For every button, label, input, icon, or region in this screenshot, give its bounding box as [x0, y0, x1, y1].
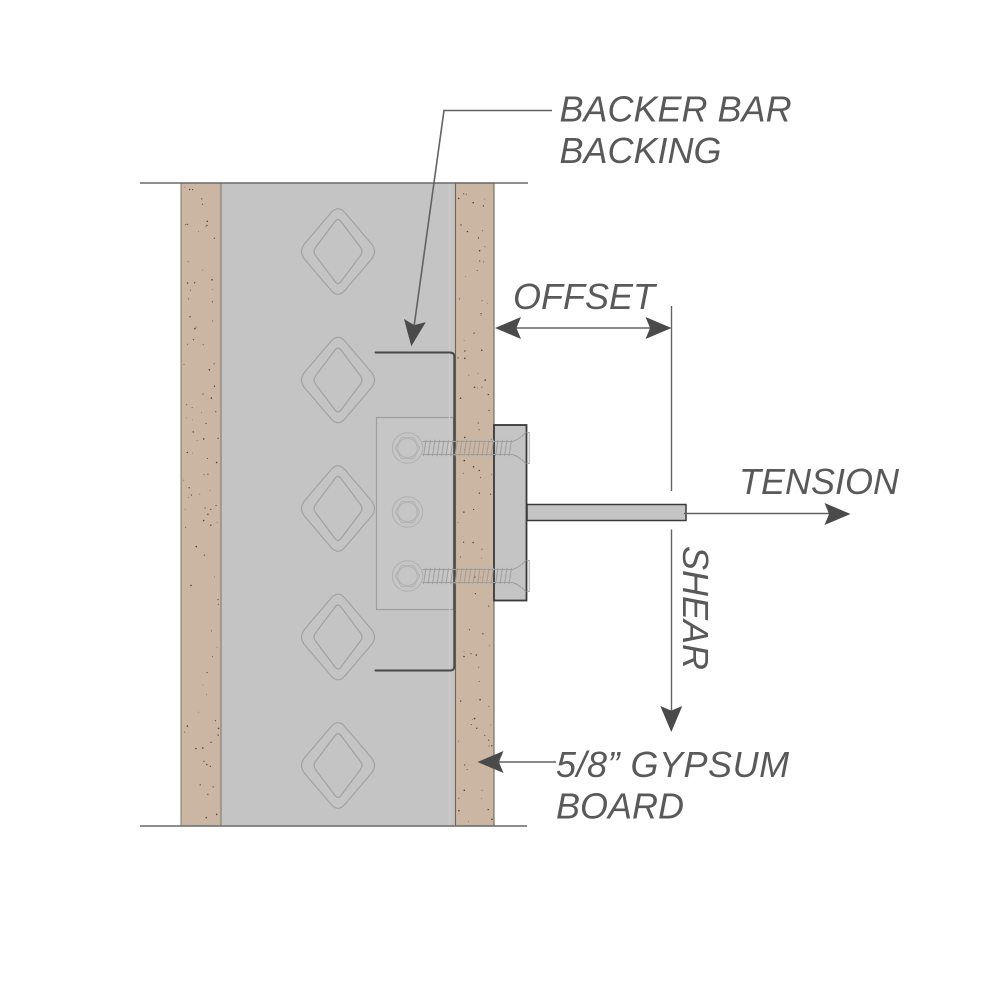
svg-text:BACKING: BACKING	[560, 130, 722, 171]
svg-text:BOARD: BOARD	[556, 786, 684, 827]
svg-text:SHEAR: SHEAR	[675, 546, 716, 670]
svg-text:5/8” GYPSUM: 5/8” GYPSUM	[556, 744, 790, 785]
svg-text:TENSION: TENSION	[739, 461, 900, 502]
svg-text:BACKER BAR: BACKER BAR	[560, 89, 792, 130]
svg-text:OFFSET: OFFSET	[513, 276, 658, 317]
